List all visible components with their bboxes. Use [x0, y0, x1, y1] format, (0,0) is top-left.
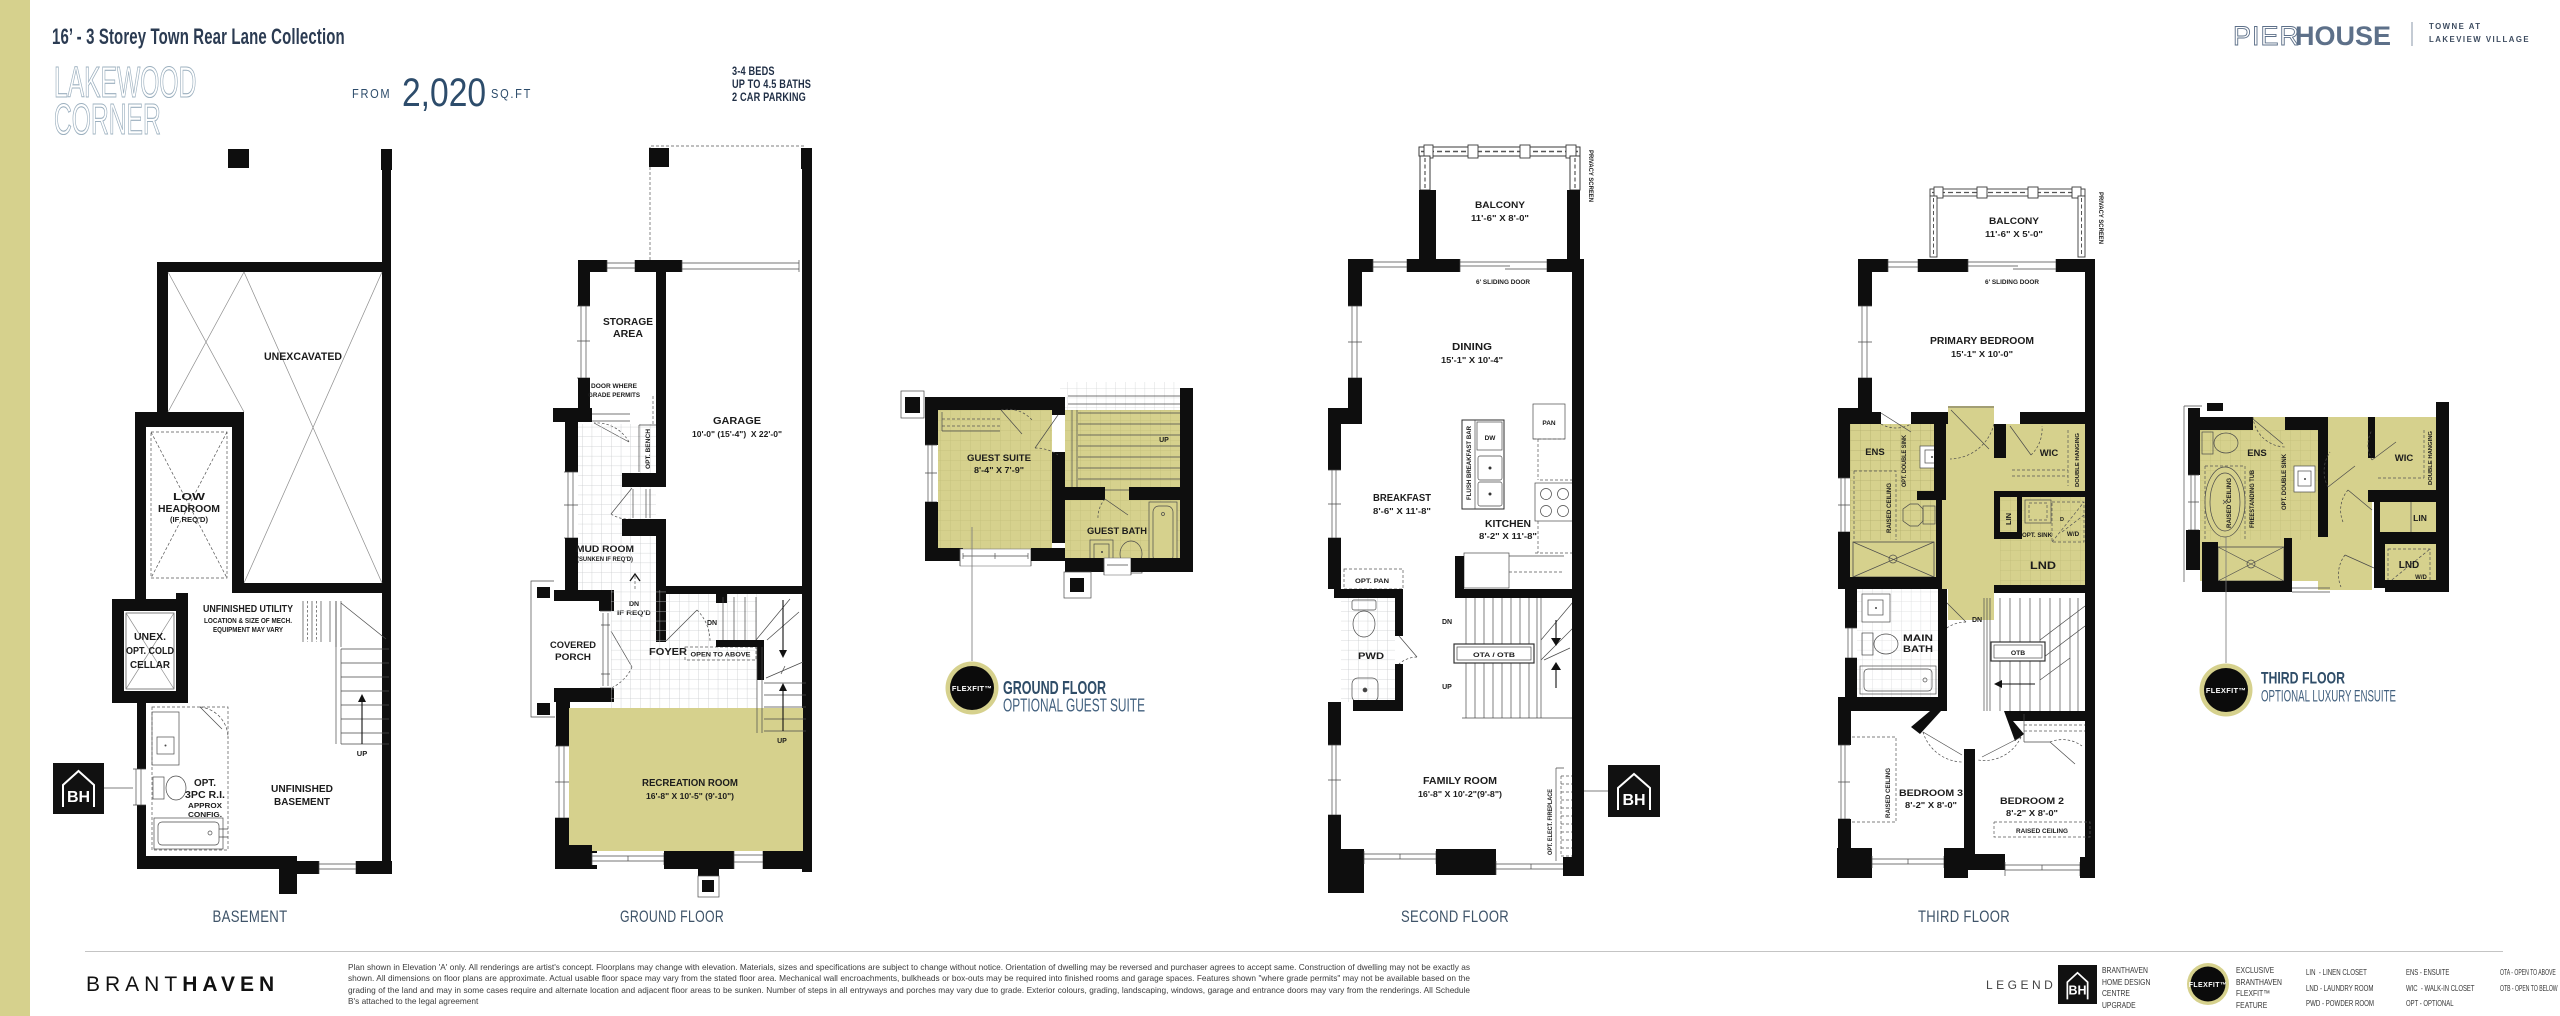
svg-text:OTB: OTB [2011, 650, 2025, 657]
svg-text:BATH: BATH [1903, 644, 1933, 655]
svg-text:MUD ROOM: MUD ROOM [576, 544, 634, 555]
svg-text:8'-2" X 11'-8": 8'-2" X 11'-8" [1479, 532, 1537, 541]
svg-text:10'-0" (15'-4") X 22'-0": 10'-0" (15'-4") X 22'-0" [692, 430, 782, 439]
svg-text:LND: LND [2399, 560, 2420, 571]
svg-text:RAISED CEILING: RAISED CEILING [1886, 768, 1892, 818]
svg-text:DINING: DINING [1452, 341, 1492, 353]
svg-text:FLEXFIT™: FLEXFIT™ [952, 684, 992, 693]
svg-text:UNEX.: UNEX. [134, 632, 166, 643]
svg-text:PORCH: PORCH [555, 652, 591, 663]
svg-text:LAKEVIEW VILLAGE: LAKEVIEW VILLAGE [2429, 35, 2530, 44]
svg-text:BREAKFAST: BREAKFAST [1373, 492, 1432, 504]
svg-text:OPT. DOUBLE SINK: OPT. DOUBLE SINK [1902, 434, 1908, 487]
svg-text:GARAGE: GARAGE [713, 415, 761, 427]
svg-text:3PC R.I.: 3PC R.I. [185, 790, 225, 801]
svg-text:DN: DN [1442, 619, 1452, 626]
svg-text:LOCATION & SIZE OF MECH.: LOCATION & SIZE OF MECH. [204, 616, 292, 625]
svg-text:8'-4" X 7'-9": 8'-4" X 7'-9" [974, 466, 1024, 475]
svg-text:STORAGE: STORAGE [603, 317, 653, 328]
svg-text:BH: BH [1622, 792, 1645, 809]
svg-text:DN: DN [1972, 617, 1982, 624]
svg-text:BASEMENT: BASEMENT [274, 796, 331, 808]
svg-text:LND: LND [2030, 560, 2056, 572]
svg-text:D: D [2060, 517, 2064, 523]
svg-text:DN: DN [707, 620, 717, 627]
svg-text:PRIMARY BEDROOM: PRIMARY BEDROOM [1930, 335, 2034, 347]
svg-text:OPTIONAL GUEST SUITE: OPTIONAL GUEST SUITE [1003, 696, 1145, 716]
svg-text:OPT. BENCH: OPT. BENCH [645, 429, 652, 469]
svg-text:OPEN TO ABOVE: OPEN TO ABOVE [691, 652, 751, 659]
svg-text:16'-8" X 10'-5" (9'-10"): 16'-8" X 10'-5" (9'-10") [646, 792, 734, 801]
svg-text:PRIVACY SCREEN: PRIVACY SCREEN [1587, 150, 1594, 202]
svg-text:GROUND FLOOR: GROUND FLOOR [620, 908, 724, 926]
svg-text:FREESTANDING TUB: FREESTANDING TUB [2250, 469, 2256, 528]
svg-text:LIN: LIN [2413, 513, 2427, 523]
svg-text:8'-2" X 8'-0": 8'-2" X 8'-0" [1905, 801, 1957, 810]
svg-text:UNFINISHED: UNFINISHED [271, 783, 333, 795]
svg-text:FAMILY ROOM: FAMILY ROOM [1423, 775, 1497, 787]
svg-text:BH: BH [67, 789, 90, 806]
svg-text:(IF REQ'D): (IF REQ'D) [170, 517, 208, 524]
svg-text:BH: BH [2068, 984, 2086, 998]
svg-text:UNFINISHED UTILITY: UNFINISHED UTILITY [203, 603, 293, 615]
svg-text:OPT. SINK: OPT. SINK [2022, 532, 2052, 539]
svg-text:UNEXCAVATED: UNEXCAVATED [264, 351, 342, 363]
svg-text:DOUBLE HANGING: DOUBLE HANGING [2428, 431, 2434, 485]
svg-text:DOUBLE HANGING: DOUBLE HANGING [2075, 433, 2081, 487]
svg-text:RAISED CEILING: RAISED CEILING [2227, 478, 2233, 528]
svg-text:CONFIG.: CONFIG. [188, 810, 222, 819]
svg-text:6' SLIDING DOOR: 6' SLIDING DOOR [1476, 279, 1530, 286]
svg-text:DW: DW [1485, 435, 1497, 442]
svg-text:OPT. COLD: OPT. COLD [126, 646, 174, 657]
svg-text:OPT. DOUBLE SINK: OPT. DOUBLE SINK [2282, 453, 2288, 510]
svg-text:UP: UP [357, 749, 367, 758]
svg-text:FLEXFIT™: FLEXFIT™ [2206, 686, 2246, 695]
svg-text:CELLAR: CELLAR [130, 660, 171, 671]
svg-text:GRADE PERMITS: GRADE PERMITS [588, 392, 641, 399]
svg-text:FLEXFIT™: FLEXFIT™ [2189, 982, 2228, 989]
svg-text:OPT. ELECT. FIREPLACE: OPT. ELECT. FIREPLACE [1548, 789, 1554, 855]
svg-text:MAIN: MAIN [1903, 633, 1933, 644]
svg-text:OTA / OTB: OTA / OTB [1473, 652, 1515, 659]
svg-text:FLUSH BREAKFAST BAR: FLUSH BREAKFAST BAR [1467, 425, 1473, 500]
svg-text:RECREATION ROOM: RECREATION ROOM [642, 777, 738, 789]
svg-text:APPROX: APPROX [188, 801, 222, 810]
svg-text:ENS: ENS [2247, 448, 2267, 459]
svg-text:OPTIONAL LUXURY ENSUITE: OPTIONAL LUXURY ENSUITE [2261, 687, 2396, 706]
svg-text:BALCONY: BALCONY [1989, 216, 2040, 227]
svg-text:11'-6" X 5'-0": 11'-6" X 5'-0" [1985, 230, 2043, 239]
svg-text:OPT.: OPT. [194, 778, 216, 789]
svg-text:11'-6" X 8'-0": 11'-6" X 8'-0" [1471, 214, 1529, 223]
svg-text:HOUSE: HOUSE [2295, 21, 2391, 51]
svg-text:DOOR WHERE: DOOR WHERE [591, 383, 638, 390]
svg-text:W/D: W/D [2067, 531, 2080, 538]
svg-text:RAISED CEILING: RAISED CEILING [1887, 483, 1893, 533]
svg-text:8'-6" X 11'-8": 8'-6" X 11'-8" [1373, 507, 1431, 516]
svg-text:WIC: WIC [2040, 448, 2059, 459]
svg-text:PRIVACY SCREEN: PRIVACY SCREEN [2097, 192, 2104, 244]
svg-text:6' SLIDING DOOR: 6' SLIDING DOOR [1985, 279, 2039, 286]
svg-text:UP: UP [1159, 437, 1169, 444]
svg-text:FOYER: FOYER [649, 646, 687, 658]
svg-text:THIRD FLOOR: THIRD FLOOR [2261, 669, 2345, 688]
svg-text:SECOND FLOOR: SECOND FLOOR [1401, 908, 1509, 926]
svg-text:HEADROOM: HEADROOM [158, 503, 220, 515]
svg-text:GUEST SUITE: GUEST SUITE [967, 453, 1031, 464]
svg-text:LIN: LIN [2004, 513, 2013, 525]
svg-text:BEDROOM 3: BEDROOM 3 [1899, 788, 1963, 799]
svg-text:COVERED: COVERED [550, 640, 596, 651]
svg-text:WIC: WIC [2395, 453, 2414, 464]
svg-text:16'-8" X 10'-2"(9'-8"): 16'-8" X 10'-2"(9'-8") [1418, 790, 1502, 799]
svg-text:GUEST BATH: GUEST BATH [1087, 526, 1147, 537]
svg-text:8'-2" X 8'-0": 8'-2" X 8'-0" [2006, 809, 2058, 818]
svg-text:PWD: PWD [1358, 651, 1384, 662]
svg-text:OPT. PAN: OPT. PAN [1355, 578, 1389, 585]
svg-text:AREA: AREA [613, 329, 643, 340]
svg-text:PAN: PAN [1542, 420, 1556, 427]
svg-text:UP: UP [1442, 684, 1452, 691]
svg-text:(SUNKEN IF REQ'D): (SUNKEN IF REQ'D) [577, 556, 633, 563]
svg-text:THIRD FLOOR: THIRD FLOOR [1918, 908, 2010, 926]
svg-text:ENS: ENS [1865, 447, 1885, 458]
svg-text:LOW: LOW [173, 491, 205, 503]
svg-text:PIER: PIER [2233, 21, 2300, 51]
svg-text:15'-1" X 10'-0": 15'-1" X 10'-0" [1951, 350, 2013, 359]
svg-text:KITCHEN: KITCHEN [1485, 518, 1531, 530]
svg-text:EQUIPMENT MAY VARY: EQUIPMENT MAY VARY [213, 625, 283, 634]
svg-text:BALCONY: BALCONY [1475, 200, 1526, 211]
svg-text:BASEMENT: BASEMENT [213, 908, 288, 926]
svg-text:15'-1" X 10'-4": 15'-1" X 10'-4" [1441, 356, 1503, 365]
svg-text:UP: UP [777, 738, 787, 745]
svg-text:RAISED CEILING: RAISED CEILING [2016, 828, 2068, 835]
svg-text:TOWNE AT: TOWNE AT [2429, 22, 2482, 31]
svg-text:BEDROOM 2: BEDROOM 2 [2000, 796, 2064, 807]
